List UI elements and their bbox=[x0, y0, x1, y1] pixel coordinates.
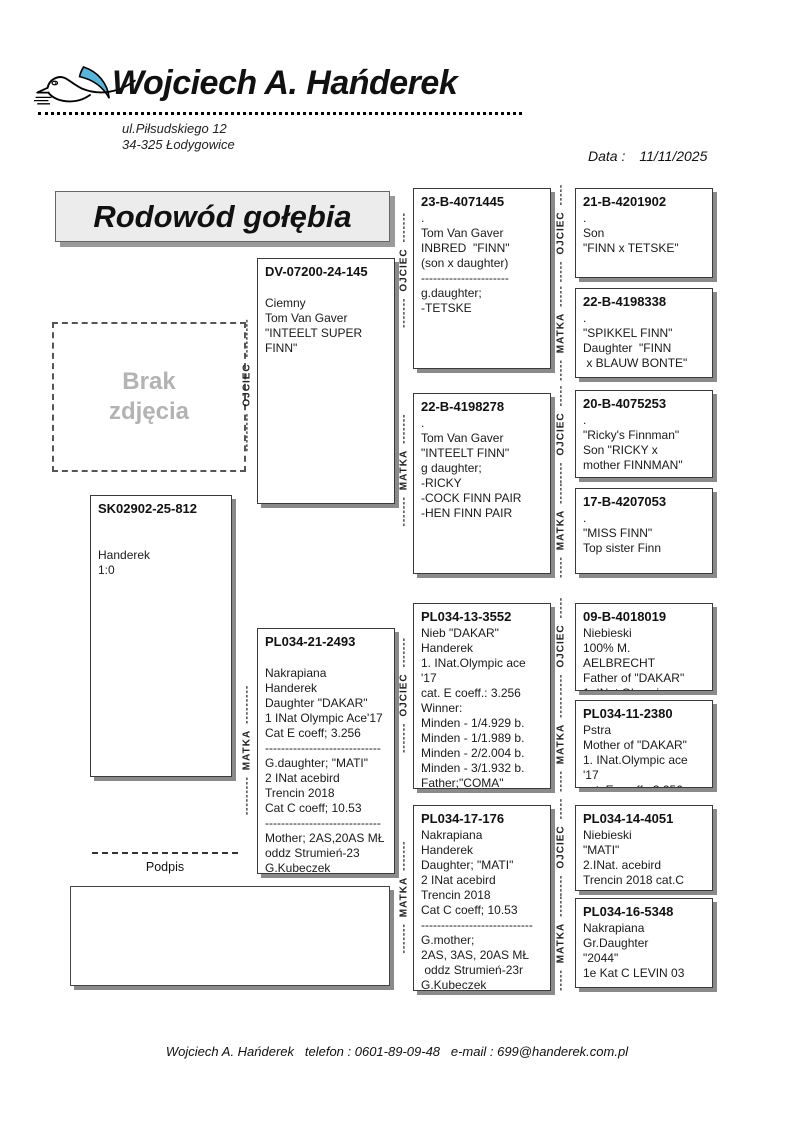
pigeon-details: Nakrapiana Gr.Daughter "2044" 1e Kat C L… bbox=[583, 921, 705, 981]
mother-connector-label: ---------MATKA--------- bbox=[242, 682, 253, 818]
pedigree-document: Wojciech A. Hańderek ul.Piłsudskiego 12 … bbox=[0, 0, 794, 1123]
pigeon-details: . Son "FINN x TETSKE" bbox=[583, 211, 705, 256]
mother-connector-label: -----MATKA----- bbox=[556, 282, 567, 384]
pigeon-ring-number: PL034-13-3552 bbox=[421, 609, 543, 624]
father-connector-label: -----OJCIEC----- bbox=[556, 382, 567, 487]
pigeon-box-fff: 21-B-4201902 . Son "FINN x TETSKE" bbox=[575, 188, 713, 278]
pigeon-ring-number: 20-B-4075253 bbox=[583, 396, 705, 411]
pigeon-ring-number: 23-B-4071445 bbox=[421, 194, 543, 209]
pigeon-ring-number: PL034-11-2380 bbox=[583, 706, 705, 721]
pigeon-ring-number: 22-B-4198338 bbox=[583, 294, 705, 309]
signature-label: Podpis bbox=[92, 860, 238, 874]
father-connector-label: -----OJCIEC----- bbox=[556, 795, 567, 900]
pigeon-box-mf: PL034-13-3552 Nieb "DAKAR" Handerek 1. I… bbox=[413, 603, 551, 789]
father-connector-label: -----OJCIEC----- bbox=[556, 181, 567, 286]
header-dotted-divider bbox=[38, 112, 522, 115]
father-connector-label: -----OJCIEC----- bbox=[556, 594, 567, 699]
pigeon-details: Handerek 1:0 bbox=[98, 518, 224, 578]
pigeon-details: . "MISS FINN" Top sister Finn bbox=[583, 511, 705, 556]
pigeon-box-father: DV-07200-24-145 Ciemny Tom Van Gaver "IN… bbox=[257, 258, 395, 504]
pigeon-details: . Tom Van Gaver "INTEELT FINN" g daughte… bbox=[421, 416, 543, 521]
notes-box bbox=[70, 886, 390, 986]
pigeon-ring-number: 17-B-4207053 bbox=[583, 494, 705, 509]
owner-address: ul.Piłsudskiego 12 34-325 Łodygowice bbox=[122, 121, 235, 153]
pigeon-box-ff: 23-B-4071445 . Tom Van Gaver INBRED "FIN… bbox=[413, 188, 551, 369]
pigeon-ring-number: 21-B-4201902 bbox=[583, 194, 705, 209]
mother-connector-label: -----MATKA----- bbox=[556, 693, 567, 795]
mother-connector-label: -----MATKA----- bbox=[556, 479, 567, 581]
father-connector-label: ---------OJCIEC--------- bbox=[242, 315, 253, 454]
pigeon-ring-number: PL034-16-5348 bbox=[583, 904, 705, 919]
pigeon-details: . "SPIKKEL FINN" Daughter "FINN x BLAUW … bbox=[583, 311, 705, 371]
father-connector-label: -------OJCIEC------- bbox=[399, 209, 410, 331]
date-label: Data : bbox=[588, 148, 625, 164]
pigeon-details: Niebieski 100% M. AELBRECHT Father of "D… bbox=[583, 626, 705, 691]
date-value: 11/11/2025 bbox=[639, 148, 707, 164]
pigeon-details: . "Ricky's Finnman" Son "RICKY x mother … bbox=[583, 413, 705, 473]
pigeon-box-subject: SK02902-25-812 Handerek 1:0 bbox=[90, 495, 232, 777]
signature-dashed-line bbox=[92, 852, 238, 854]
pigeon-ring-number: 09-B-4018019 bbox=[583, 609, 705, 624]
pigeon-box-fm: 22-B-4198278 . Tom Van Gaver "INTEELT FI… bbox=[413, 393, 551, 574]
pigeon-details: Pstra Mother of "DAKAR" 1. INat.Olympic … bbox=[583, 723, 705, 788]
pigeon-box-mm: PL034-17-176 Nakrapiana Handerek Daughte… bbox=[413, 805, 551, 991]
pigeon-details: Niebieski "MATI" 2.INat. acebird Trencin… bbox=[583, 828, 705, 888]
father-connector-label: -------OJCIEC------- bbox=[399, 634, 410, 756]
pigeon-ring-number: DV-07200-24-145 bbox=[265, 264, 387, 279]
page-title: Rodowód gołębia bbox=[55, 191, 390, 242]
pigeon-details: Nakrapiana Handerek Daughter "DAKAR" 1 I… bbox=[265, 651, 387, 874]
pigeon-ring-number: 22-B-4198278 bbox=[421, 399, 543, 414]
photo-placeholder: Brak zdjęcia bbox=[52, 322, 246, 472]
pigeon-ring-number: PL034-17-176 bbox=[421, 811, 543, 826]
pigeon-ring-number: SK02902-25-812 bbox=[98, 501, 224, 516]
mother-connector-label: -------MATKA------- bbox=[399, 838, 410, 957]
pigeon-box-mmm: PL034-16-5348 Nakrapiana Gr.Daughter "20… bbox=[575, 898, 713, 988]
pigeon-box-ffm: 22-B-4198338 . "SPIKKEL FINN" Daughter "… bbox=[575, 288, 713, 378]
mother-connector-label: -------MATKA------- bbox=[399, 411, 410, 530]
pigeon-details: Ciemny Tom Van Gaver "INTEELT SUPER FINN… bbox=[265, 281, 387, 356]
pigeon-ring-number: PL034-21-2493 bbox=[265, 634, 387, 649]
pigeon-box-mmf: PL034-14-4051 Niebieski "MATI" 2.INat. a… bbox=[575, 805, 713, 891]
date-row: Data : 11/11/2025 bbox=[588, 148, 707, 164]
pigeon-ring-number: PL034-14-4051 bbox=[583, 811, 705, 826]
mother-connector-label: -----MATKA----- bbox=[556, 892, 567, 994]
pigeon-details: Nieb "DAKAR" Handerek 1. INat.Olympic ac… bbox=[421, 626, 543, 789]
owner-name: Wojciech A. Hańderek bbox=[112, 64, 457, 103]
pigeon-box-mff: 09-B-4018019 Niebieski 100% M. AELBRECHT… bbox=[575, 603, 713, 691]
pigeon-box-mfm: PL034-11-2380 Pstra Mother of "DAKAR" 1.… bbox=[575, 700, 713, 788]
footer-contact: Wojciech A. Hańderek telefon : 0601-89-0… bbox=[0, 1044, 794, 1059]
pigeon-box-fmm: 17-B-4207053 . "MISS FINN" Top sister Fi… bbox=[575, 488, 713, 574]
pigeon-box-fmf: 20-B-4075253 . "Ricky's Finnman" Son "RI… bbox=[575, 390, 713, 478]
pigeon-details: . Tom Van Gaver INBRED "FINN" (son x dau… bbox=[421, 211, 543, 316]
pigeon-details: Nakrapiana Handerek Daughter; "MATI" 2 I… bbox=[421, 828, 543, 991]
pigeon-box-mother: PL034-21-2493 Nakrapiana Handerek Daught… bbox=[257, 628, 395, 874]
